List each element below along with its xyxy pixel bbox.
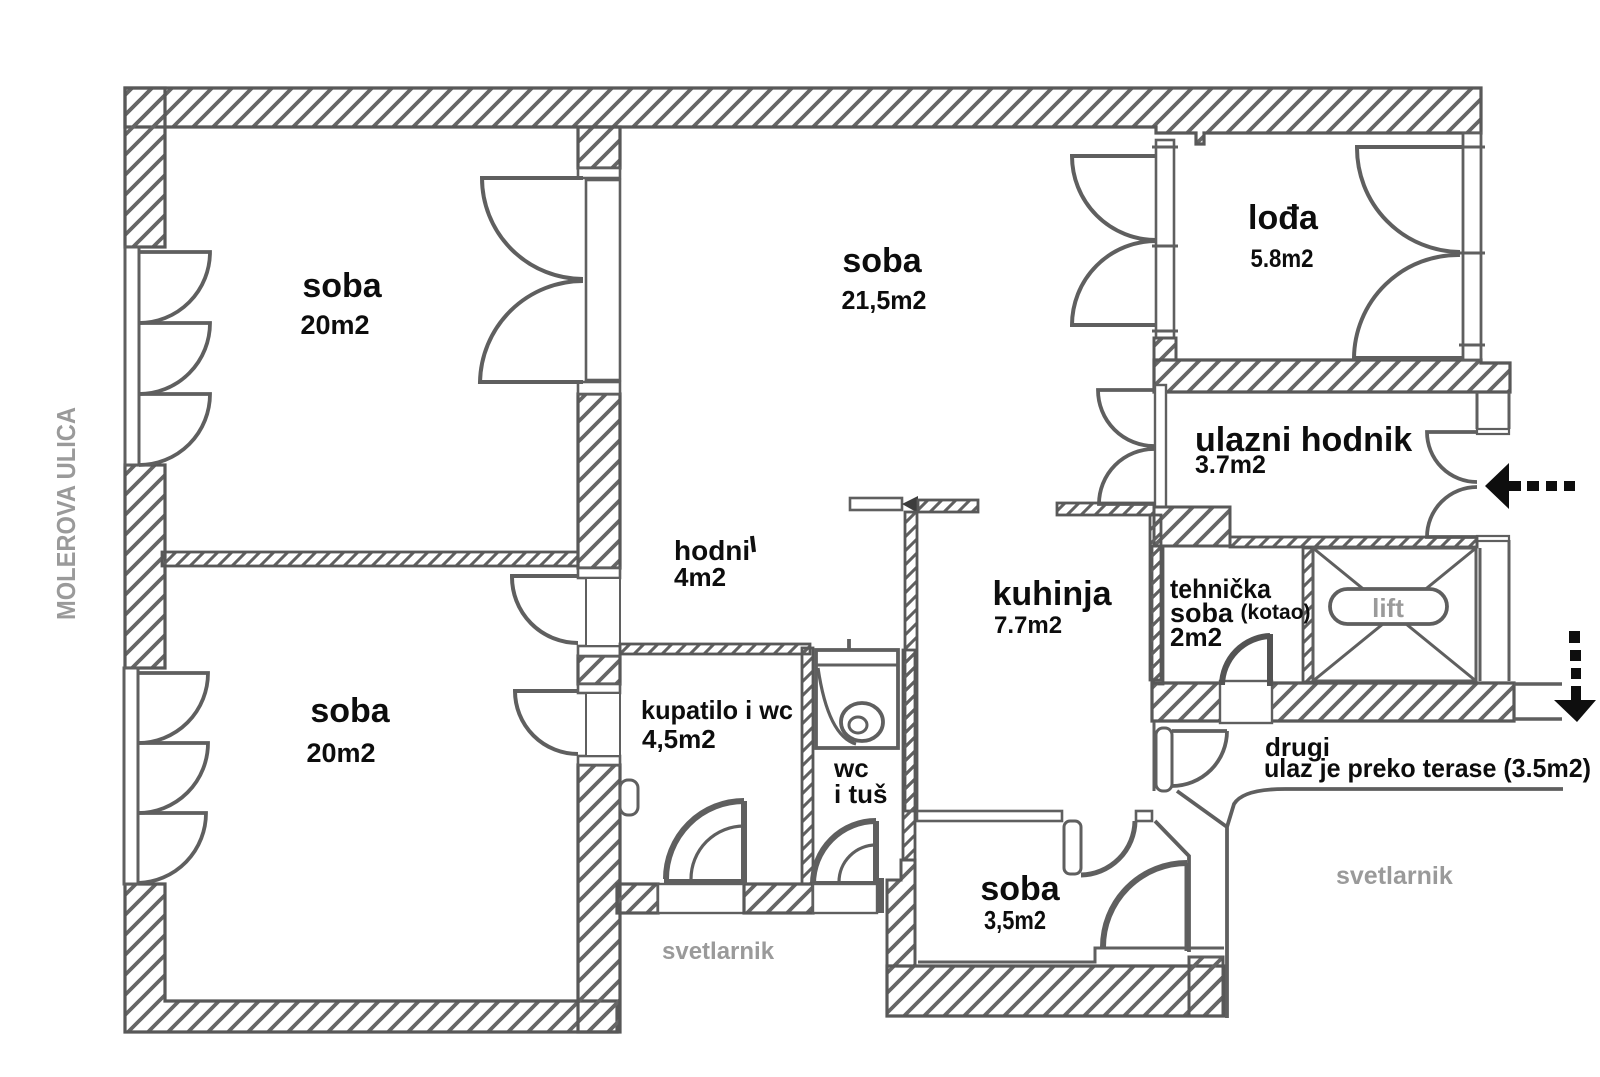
- svg-text:soba: soba: [842, 242, 922, 280]
- svg-text:soba: soba: [980, 870, 1060, 908]
- svg-text:20m2: 20m2: [306, 738, 375, 768]
- svg-text:2m2: 2m2: [1170, 622, 1222, 652]
- svg-text:soba: soba: [302, 267, 382, 305]
- svg-text:3,5m2: 3,5m2: [984, 905, 1046, 935]
- svg-text:MOLEROVA ULICA: MOLEROVA ULICA: [51, 407, 81, 620]
- svg-text:kuhinja: kuhinja: [992, 575, 1112, 613]
- svg-text:4m2: 4m2: [674, 562, 726, 592]
- svg-text:5.8m2: 5.8m2: [1251, 245, 1314, 273]
- svg-text:7.7m2: 7.7m2: [994, 612, 1062, 639]
- svg-text:soba: soba: [310, 692, 390, 730]
- svg-text:lift: lift: [1372, 593, 1404, 623]
- svg-text:4,5m2: 4,5m2: [642, 724, 716, 754]
- svg-text:svetlarnik: svetlarnik: [662, 938, 775, 965]
- svg-text:lođa: lođa: [1248, 199, 1319, 237]
- svg-text:kupatilo i wc: kupatilo i wc: [641, 695, 793, 725]
- svg-text:21,5m2: 21,5m2: [842, 285, 927, 315]
- svg-text:20m2: 20m2: [300, 310, 369, 340]
- svg-text:svetlarnik: svetlarnik: [1336, 862, 1453, 890]
- svg-text:i tuš: i tuš: [834, 779, 887, 809]
- svg-text:3.7m2: 3.7m2: [1195, 451, 1266, 479]
- svg-text:ulaz je preko terase (3.5m2): ulaz je preko terase (3.5m2): [1264, 753, 1591, 783]
